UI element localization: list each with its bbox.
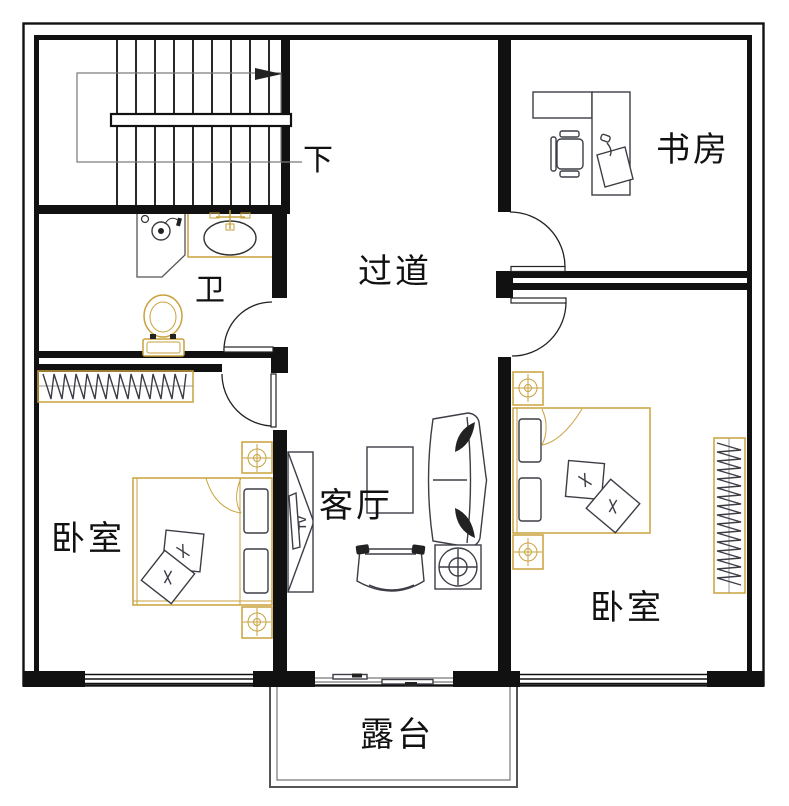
armchair [356, 544, 426, 591]
tv-cabinet: TV [288, 452, 313, 592]
nightstand [242, 607, 272, 638]
pier [23, 671, 85, 687]
bed [513, 408, 650, 533]
office-chair [551, 131, 583, 177]
wardrobe [714, 438, 745, 593]
top-wall [34, 35, 752, 40]
nightstand [513, 535, 543, 569]
room-label-bedroom-left: 卧室 [51, 520, 125, 558]
toilet-icon [143, 295, 184, 356]
pillow [519, 478, 541, 521]
blanket-fold [206, 478, 241, 513]
pier [707, 671, 764, 687]
stair-treads-lower [117, 126, 269, 205]
side-table [435, 545, 481, 589]
window-bedroom-left [85, 675, 253, 684]
sink-counter [188, 210, 272, 257]
pillow [519, 419, 541, 462]
sofa [429, 413, 487, 547]
bed [133, 478, 272, 605]
sliding-door-terrace [315, 674, 453, 687]
blanket-fold [542, 409, 582, 445]
room-label-study: 书房 [656, 131, 730, 169]
stair-bottom-wall [34, 205, 290, 214]
stairwell: 下 [77, 40, 333, 205]
floor-plan: 下 [0, 0, 789, 806]
floor-plan-svg: 下 [0, 0, 789, 806]
room-label-hallway: 过道 [358, 253, 432, 291]
pier [253, 671, 315, 687]
pillow [244, 549, 268, 593]
study [533, 92, 633, 195]
living-bedroom-right-wall [498, 357, 511, 671]
floor-drain-icon [142, 216, 149, 223]
nightstand [242, 442, 272, 473]
pier [453, 671, 520, 687]
wall-pier-right [496, 271, 513, 298]
stair-treads-upper [117, 40, 269, 114]
room-label-bathroom: 卫 [195, 274, 225, 307]
hallway-study-wall [498, 40, 511, 212]
pillow [244, 489, 268, 533]
bedroom-left-living-wall [273, 430, 287, 671]
bathroom-door [224, 302, 273, 352]
bedroom-right [513, 372, 745, 593]
room-labels: 书房 过道 卫 卧室 客厅 卧室 露台 [51, 131, 730, 754]
room-label-terrace: 露台 [360, 716, 434, 754]
tv-text: TV [297, 515, 309, 530]
desk [533, 92, 592, 118]
right-wall [747, 35, 752, 672]
nightstand [513, 372, 543, 405]
room-label-living-room: 客厅 [319, 487, 393, 525]
bedroom-right-top-wall [511, 283, 747, 290]
stairs-down-label: 下 [303, 144, 333, 177]
window-bedroom-right [520, 675, 707, 684]
closet [38, 371, 193, 402]
bathroom-right-wall [272, 214, 287, 298]
shower-area [137, 214, 185, 277]
study-door [510, 212, 565, 272]
room-label-bedroom-right: 卧室 [590, 589, 664, 627]
bedroom-right-door [511, 298, 566, 356]
stair-handrail [111, 114, 291, 126]
bedroom-left-door [222, 374, 276, 427]
